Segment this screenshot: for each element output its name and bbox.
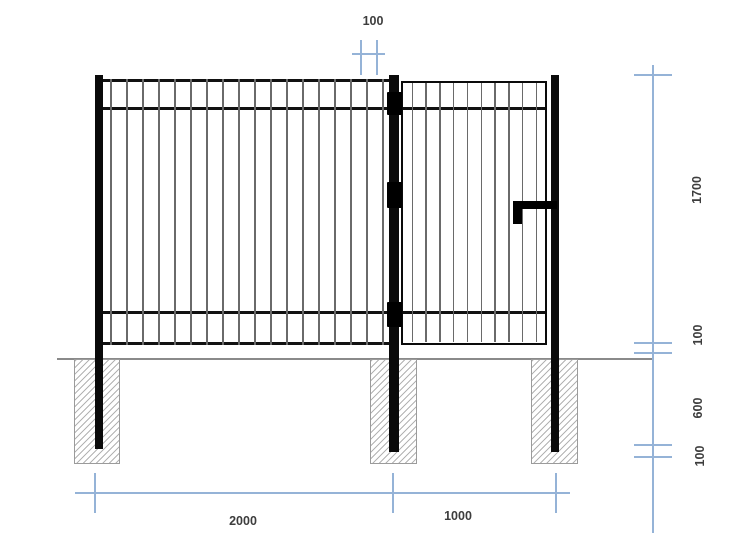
fence-bar (206, 79, 208, 345)
fence-bar (174, 79, 176, 345)
fence-bar (508, 83, 510, 342)
fence-panel-bars (103, 79, 389, 345)
post-right (551, 75, 559, 452)
bottom-dim-tick (392, 473, 394, 513)
fence-bar (494, 83, 496, 342)
dim-label-1700: 1700 (689, 168, 705, 212)
fence-bar (110, 79, 112, 345)
fence-bar (158, 79, 160, 345)
gate-frame (401, 81, 547, 345)
fence-bar (334, 79, 336, 345)
hinge-top (387, 92, 402, 115)
post-left (95, 75, 103, 449)
fence-bar (467, 83, 469, 342)
right-dim-tick (634, 352, 672, 354)
bottom-dim-tick (94, 473, 96, 513)
dim-label-600: 600 (690, 386, 706, 430)
fence-bar (142, 79, 144, 345)
fence-elevation-drawing: 100 1700 100 600 100 2000 1000 (0, 0, 747, 541)
fence-bar (412, 83, 414, 342)
fence-bar (350, 79, 352, 345)
top-dim-extension-line (360, 40, 362, 75)
fence-bar (453, 83, 455, 342)
fence-bar (286, 79, 288, 345)
fence-bar (222, 79, 224, 345)
fence-bar (238, 79, 240, 345)
right-dim-tick (634, 444, 672, 446)
right-dim-tick (634, 74, 672, 76)
fence-bar (318, 79, 320, 345)
fence-bar (439, 83, 441, 342)
dim-label-100-footing: 100 (692, 434, 708, 478)
hinge-middle (387, 182, 402, 208)
top-dim-tick (352, 53, 369, 55)
fence-bar (270, 79, 272, 345)
fence-bar (302, 79, 304, 345)
right-dim-line (652, 65, 654, 533)
right-dim-tick (634, 456, 672, 458)
post-middle (389, 75, 399, 452)
fence-bar (481, 83, 483, 342)
fence-bar (366, 79, 368, 345)
fence-bar (382, 79, 384, 345)
top-dim-extension-line (376, 40, 378, 75)
fence-bar (536, 83, 538, 342)
fence-bar (425, 83, 427, 342)
fence-bar (126, 79, 128, 345)
dim-label-100-ground: 100 (690, 313, 706, 357)
gate-bars (403, 83, 544, 342)
hinge-bottom (387, 302, 402, 327)
bottom-dim-line (75, 492, 570, 494)
fence-bar (254, 79, 256, 345)
fence-bar (190, 79, 192, 345)
dim-label-1000: 1000 (428, 508, 488, 524)
dim-label-top-100: 100 (353, 13, 393, 29)
gate-handle-grip (513, 201, 522, 224)
bottom-dim-tick (555, 473, 557, 513)
dim-label-2000: 2000 (213, 513, 273, 529)
fence-bar (522, 83, 524, 342)
right-dim-tick (634, 342, 672, 344)
top-dim-tick (368, 53, 385, 55)
